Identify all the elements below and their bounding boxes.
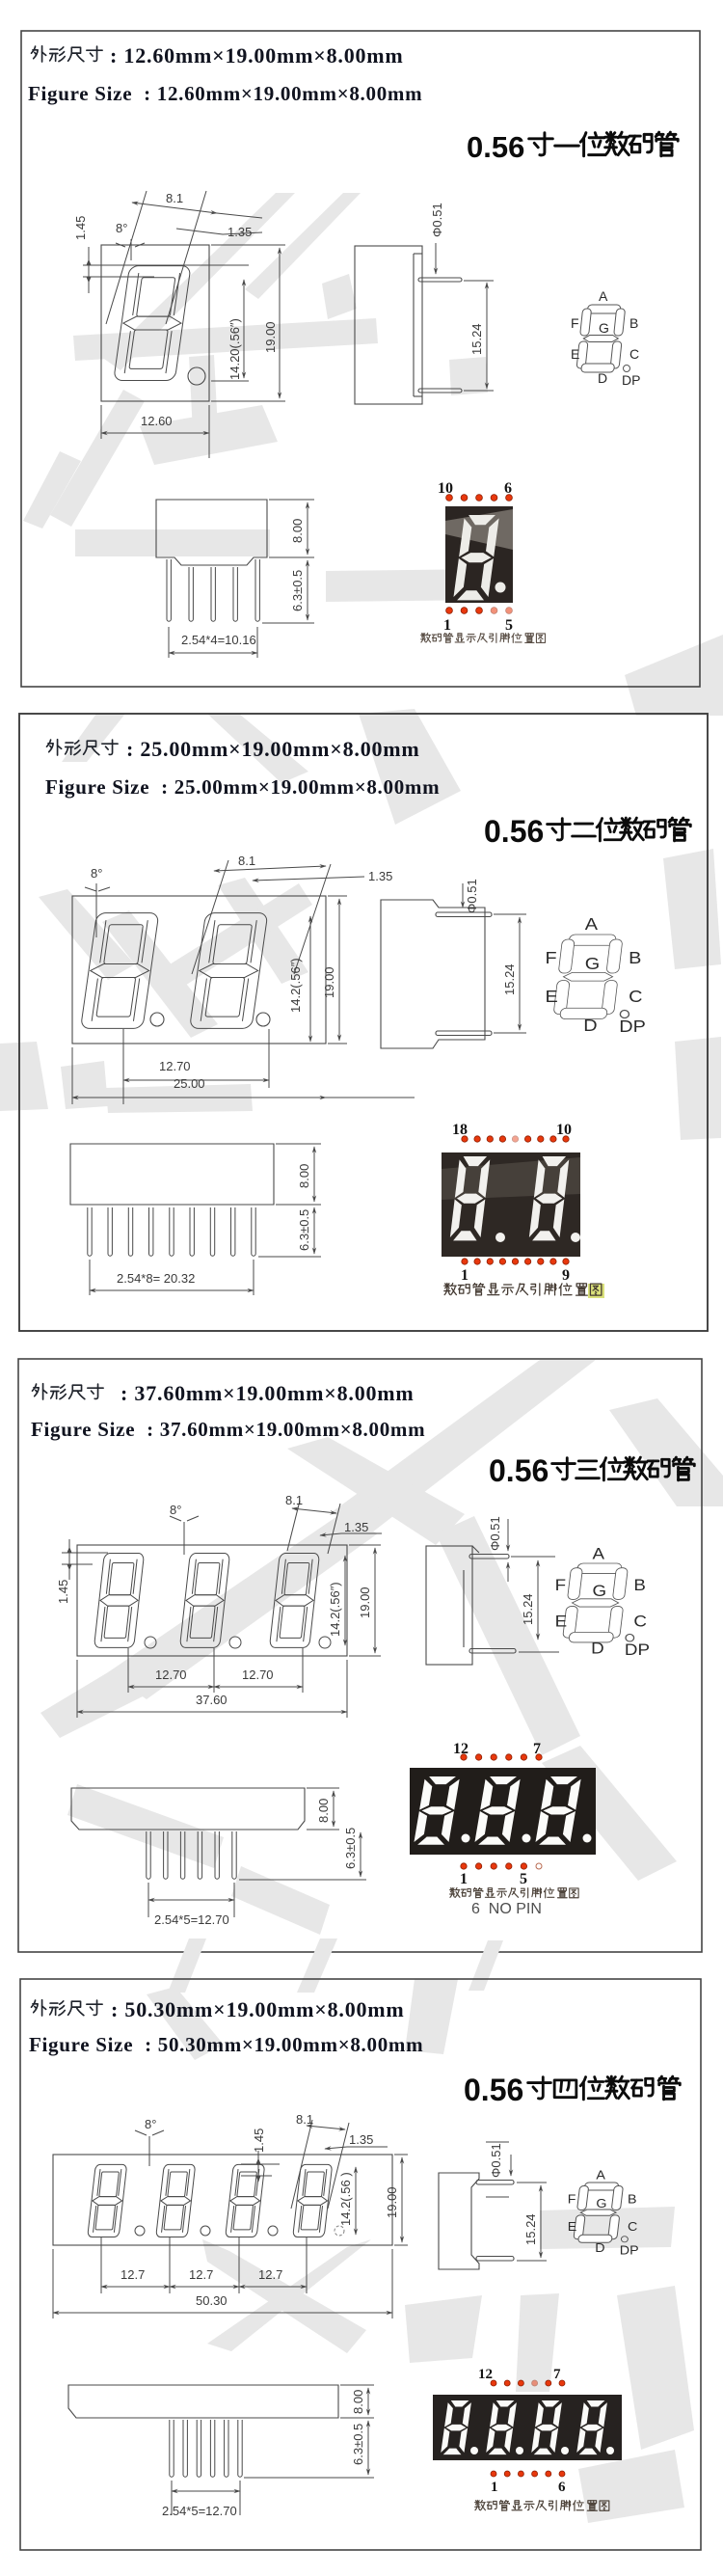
svg-text:D: D bbox=[598, 370, 607, 386]
svg-text:15.24: 15.24 bbox=[469, 323, 484, 355]
svg-text:A: A bbox=[592, 1544, 604, 1562]
svg-text:: 50.30mm×19.00mm×8.00mm: : 50.30mm×19.00mm×8.00mm bbox=[111, 1997, 405, 2021]
svg-text:12.7: 12.7 bbox=[189, 2267, 213, 2282]
svg-text:14.20(.56″): 14.20(.56″) bbox=[228, 318, 242, 380]
svg-text:F: F bbox=[546, 948, 557, 967]
svg-text:B: B bbox=[629, 315, 638, 331]
svg-text:C: C bbox=[629, 346, 639, 362]
svg-text:2.54*8= 20.32: 2.54*8= 20.32 bbox=[117, 1271, 195, 1286]
svg-text:1.35: 1.35 bbox=[344, 1520, 368, 1534]
svg-text:1: 1 bbox=[443, 617, 451, 634]
svg-text:B: B bbox=[628, 2192, 637, 2206]
svg-text:D: D bbox=[583, 1016, 597, 1035]
svg-text:F: F bbox=[568, 2192, 576, 2206]
svg-text:25.00: 25.00 bbox=[174, 1076, 205, 1091]
svg-text:E: E bbox=[568, 2220, 577, 2234]
svg-text:2.54*5=12.70: 2.54*5=12.70 bbox=[162, 2504, 237, 2518]
svg-text:0.56: 0.56 bbox=[484, 814, 544, 849]
svg-text:Φ0.51: Φ0.51 bbox=[465, 879, 479, 913]
svg-text:Figure Size : 37.60mm×19.00mm: Figure Size : 37.60mm×19.00mm×8.00mm bbox=[31, 1418, 425, 1441]
svg-text:8°: 8° bbox=[145, 2117, 156, 2131]
svg-text:0.56: 0.56 bbox=[464, 2073, 523, 2107]
svg-text:D: D bbox=[595, 2241, 605, 2255]
svg-text:10: 10 bbox=[556, 1122, 572, 1138]
svg-text:F: F bbox=[571, 315, 579, 331]
svg-text:G: G bbox=[592, 1582, 606, 1600]
svg-text:12.7: 12.7 bbox=[120, 2267, 145, 2282]
svg-text:C: C bbox=[629, 987, 642, 1006]
svg-text:8°: 8° bbox=[170, 1503, 181, 1517]
svg-text:50.30: 50.30 bbox=[196, 2293, 228, 2308]
svg-text:1: 1 bbox=[461, 1267, 469, 1284]
svg-text:2.54*5=12.70: 2.54*5=12.70 bbox=[154, 1912, 229, 1927]
svg-text:8.00: 8.00 bbox=[297, 1164, 311, 1188]
svg-text:6 NO PIN: 6 NO PIN bbox=[471, 1901, 542, 1917]
svg-text:DP: DP bbox=[625, 1641, 650, 1659]
svg-text:DP: DP bbox=[620, 2244, 639, 2258]
svg-text:8.1: 8.1 bbox=[296, 2112, 313, 2127]
svg-text:8.00: 8.00 bbox=[351, 2390, 365, 2414]
svg-text:19.00: 19.00 bbox=[385, 2186, 399, 2218]
svg-text:6: 6 bbox=[558, 2480, 566, 2495]
svg-text:12.70: 12.70 bbox=[242, 1668, 274, 1682]
svg-text:15.24: 15.24 bbox=[523, 2213, 538, 2245]
svg-text:1: 1 bbox=[491, 2480, 498, 2495]
svg-text:2.54*4=10.16: 2.54*4=10.16 bbox=[181, 633, 256, 647]
svg-text:D: D bbox=[591, 1640, 604, 1658]
svg-text:5: 5 bbox=[505, 617, 513, 634]
svg-text:F: F bbox=[555, 1576, 567, 1594]
svg-text:E: E bbox=[546, 987, 558, 1006]
svg-text:12.60: 12.60 bbox=[141, 414, 173, 428]
svg-text:19.00: 19.00 bbox=[263, 321, 278, 353]
svg-text:6.3±0.5: 6.3±0.5 bbox=[343, 1828, 358, 1869]
svg-text:14.2(.56″): 14.2(.56″) bbox=[288, 958, 303, 1013]
svg-text:8°: 8° bbox=[91, 866, 102, 881]
svg-text:Figure Size : 12.60mm×19.00mm: Figure Size : 12.60mm×19.00mm×8.00mm bbox=[28, 82, 422, 105]
svg-text:12.70: 12.70 bbox=[155, 1668, 187, 1682]
svg-text:8.00: 8.00 bbox=[290, 519, 305, 543]
svg-text:15.24: 15.24 bbox=[521, 1593, 535, 1625]
svg-text:12.70: 12.70 bbox=[159, 1059, 191, 1073]
svg-text:: 25.00mm×19.00mm×8.00mm: : 25.00mm×19.00mm×8.00mm bbox=[126, 737, 420, 761]
svg-text:15.24: 15.24 bbox=[502, 963, 517, 995]
svg-text:Φ0.51: Φ0.51 bbox=[488, 1516, 502, 1551]
svg-text:1: 1 bbox=[460, 1871, 468, 1887]
svg-text:1.35: 1.35 bbox=[349, 2132, 373, 2147]
svg-text:G: G bbox=[596, 2197, 606, 2210]
svg-text:5: 5 bbox=[520, 1871, 527, 1887]
svg-text:6.3±0.5: 6.3±0.5 bbox=[290, 570, 305, 611]
svg-text:E: E bbox=[571, 346, 579, 362]
svg-text:1.35: 1.35 bbox=[368, 869, 392, 883]
svg-text:C: C bbox=[633, 1613, 647, 1631]
svg-text:B: B bbox=[633, 1576, 646, 1594]
svg-text:G: G bbox=[585, 954, 600, 973]
svg-text:B: B bbox=[629, 948, 641, 967]
svg-text:A: A bbox=[585, 914, 599, 934]
svg-text:10: 10 bbox=[438, 480, 453, 497]
svg-text:7: 7 bbox=[553, 2367, 561, 2382]
svg-text:8.1: 8.1 bbox=[238, 854, 255, 868]
svg-text:14.2(.56″): 14.2(.56″) bbox=[328, 1582, 342, 1637]
svg-text:Figure Size : 25.00mm×19.00mm: Figure Size : 25.00mm×19.00mm×8.00mm bbox=[45, 775, 440, 799]
svg-text:19.00: 19.00 bbox=[322, 966, 336, 998]
svg-text:: 12.60mm×19.00mm×8.00mm: : 12.60mm×19.00mm×8.00mm bbox=[110, 43, 404, 68]
svg-text:1.45: 1.45 bbox=[252, 2129, 266, 2153]
svg-text:DP: DP bbox=[619, 1017, 646, 1036]
svg-text:12: 12 bbox=[453, 1741, 469, 1757]
svg-text:1.45: 1.45 bbox=[73, 216, 88, 240]
svg-text:12.7: 12.7 bbox=[258, 2267, 282, 2282]
svg-text:C: C bbox=[628, 2220, 638, 2234]
svg-text:1.45: 1.45 bbox=[56, 1580, 70, 1604]
svg-text:8.1: 8.1 bbox=[166, 191, 183, 205]
svg-text:19.00: 19.00 bbox=[358, 1586, 372, 1618]
svg-text:14.2(.56 ): 14.2(.56 ) bbox=[338, 2172, 353, 2226]
svg-text:E: E bbox=[555, 1613, 568, 1631]
svg-text:8°: 8° bbox=[116, 221, 127, 235]
svg-text:9: 9 bbox=[562, 1267, 570, 1284]
svg-text:12: 12 bbox=[478, 2367, 493, 2382]
svg-text:6.3±0.5: 6.3±0.5 bbox=[351, 2424, 365, 2465]
svg-text:18: 18 bbox=[452, 1122, 468, 1138]
svg-text:0.56: 0.56 bbox=[467, 130, 524, 164]
svg-text:G: G bbox=[599, 320, 609, 336]
svg-text:0.56: 0.56 bbox=[489, 1453, 549, 1488]
svg-text:Figure Size : 50.30mm×19.00mm: Figure Size : 50.30mm×19.00mm×8.00mm bbox=[29, 2033, 423, 2056]
svg-text:: 37.60mm×19.00mm×8.00mm: : 37.60mm×19.00mm×8.00mm bbox=[120, 1381, 415, 1405]
svg-text:Φ0.51: Φ0.51 bbox=[489, 2143, 503, 2178]
svg-text:Φ0.51: Φ0.51 bbox=[430, 203, 444, 237]
svg-text:A: A bbox=[599, 288, 608, 304]
svg-text:DP: DP bbox=[622, 372, 640, 388]
svg-text:A: A bbox=[596, 2168, 605, 2182]
svg-text:37.60: 37.60 bbox=[196, 1693, 228, 1707]
svg-text:8.1: 8.1 bbox=[285, 1493, 303, 1507]
svg-text:1.35: 1.35 bbox=[228, 225, 252, 239]
svg-text:8.00: 8.00 bbox=[316, 1799, 331, 1823]
svg-text:6.3±0.5: 6.3±0.5 bbox=[297, 1209, 311, 1251]
